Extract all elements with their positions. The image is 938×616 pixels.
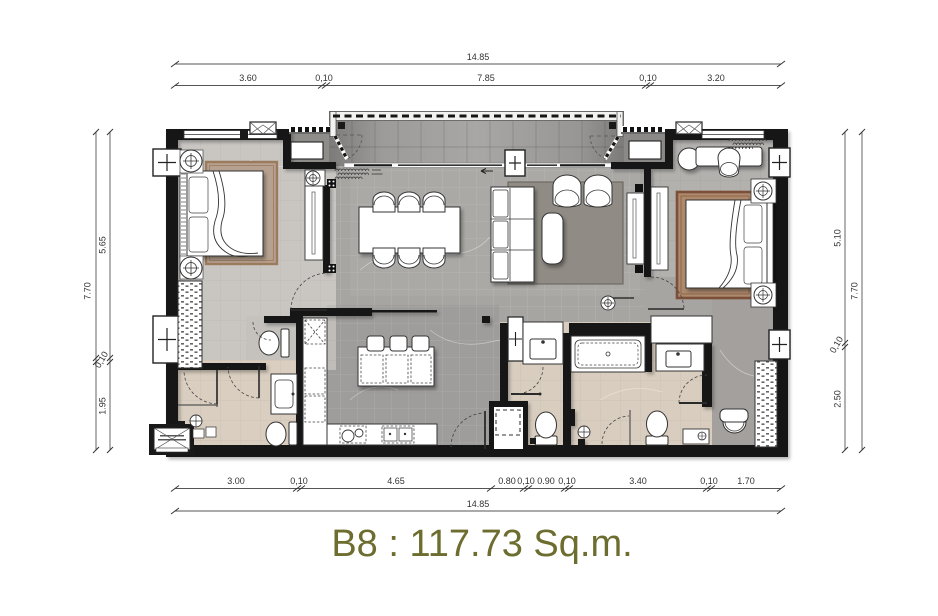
svg-text:4.65: 4.65 — [387, 476, 405, 486]
svg-text:0,10: 0,10 — [639, 73, 657, 83]
svg-text:0,10: 0,10 — [315, 73, 333, 83]
svg-text:0.90: 0.90 — [537, 476, 555, 486]
svg-text:1.95: 1.95 — [97, 397, 107, 415]
svg-text:14.85: 14.85 — [467, 52, 490, 62]
svg-text:3.60: 3.60 — [239, 73, 257, 83]
svg-text:0,10: 0,10 — [558, 476, 576, 486]
svg-text:0.80: 0.80 — [498, 476, 516, 486]
svg-text:3.00: 3.00 — [227, 476, 245, 486]
svg-text:7.85: 7.85 — [477, 73, 495, 83]
svg-text:0,10: 0,10 — [290, 476, 308, 486]
svg-text:3.40: 3.40 — [629, 476, 647, 486]
svg-text:3.20: 3.20 — [707, 73, 725, 83]
svg-text:0,10: 0,10 — [517, 476, 535, 486]
svg-text:B8 : 117.73 Sq.m.: B8 : 117.73 Sq.m. — [331, 523, 632, 565]
svg-text:1.70: 1.70 — [737, 476, 755, 486]
svg-text:7.70: 7.70 — [849, 282, 859, 300]
svg-text:14.85: 14.85 — [467, 499, 490, 509]
svg-text:5.65: 5.65 — [97, 236, 107, 254]
svg-text:7.70: 7.70 — [82, 282, 92, 300]
svg-text:2.50: 2.50 — [832, 390, 842, 408]
svg-text:5.10: 5.10 — [832, 229, 842, 247]
svg-text:0,10: 0,10 — [700, 476, 718, 486]
